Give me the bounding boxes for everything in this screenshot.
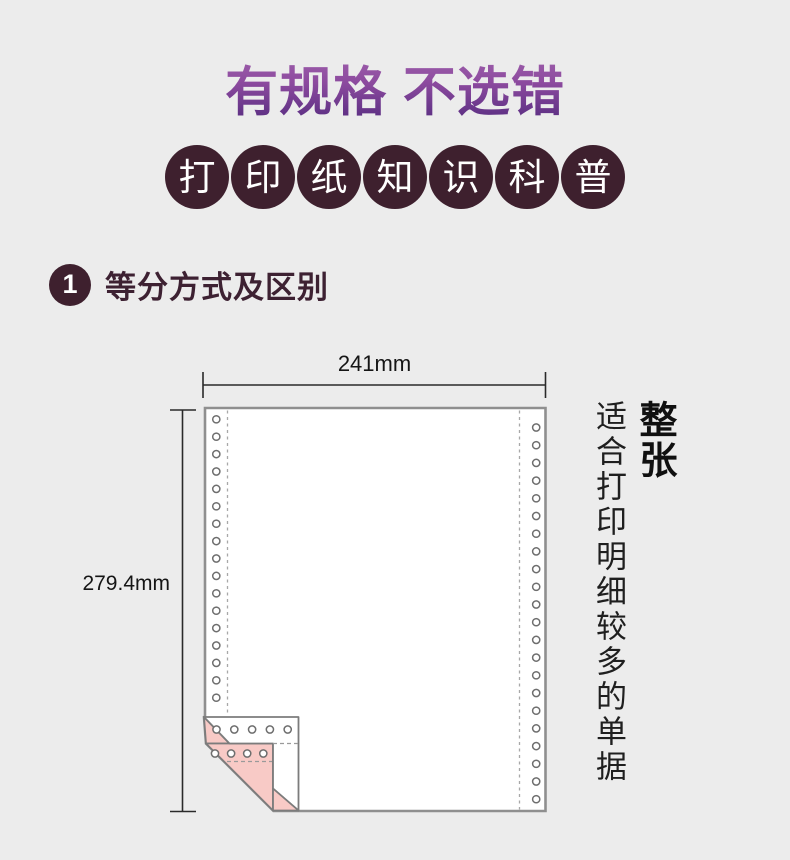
- paper-annotation: 整张 适合打印明细较多的单据: [590, 400, 673, 785]
- annotation-description: 适合打印明细较多的单据: [590, 400, 626, 785]
- page: 有规格 不选错 打 印 纸 知 识 科 普 1 等分方式及区别 241mm 27…: [0, 0, 790, 860]
- annotation-headline: 整张: [635, 400, 673, 785]
